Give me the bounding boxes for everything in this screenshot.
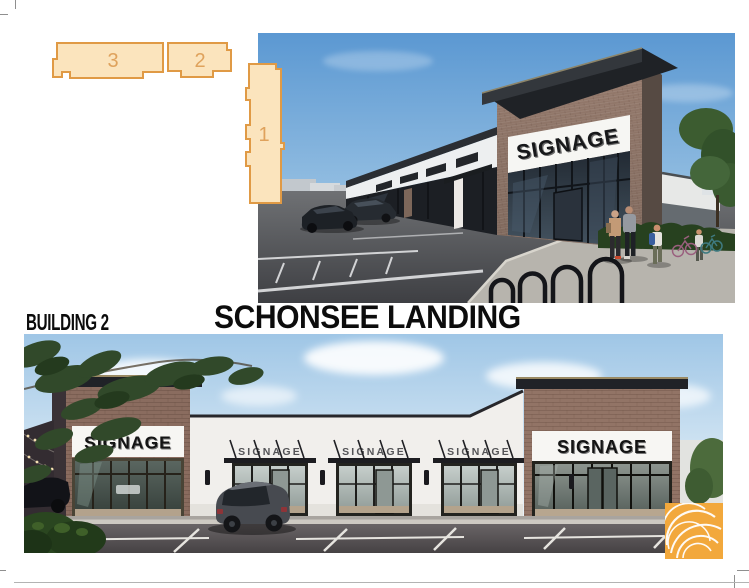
tenant-bay: SIGNAGE [328,440,420,516]
entry-door [603,468,617,513]
crop-mark-bottom-right-h [737,570,749,571]
perspective-rendering: SIGNAGE SIGNAGE [258,33,735,303]
page-title: SCHONSEE LANDING [214,301,521,333]
page-edge-line [14,582,749,583]
entry-doors [554,188,582,241]
site-plan-building-number: 3 [107,50,118,72]
right-tower: SIGNAGE SIGNAGE [516,377,688,516]
tree [685,468,713,504]
building-label: BUILDING 2 [26,311,109,334]
entry-door [588,468,602,513]
presentation-page: SIGNAGE SIGNAGE [0,0,749,588]
logo-arcs-icon [665,503,723,559]
canopy-signage-text: SIGNAGE [342,446,406,458]
signage-text: SIGNAGE [557,437,647,457]
canopy [433,458,525,463]
crop-mark-bottom-left-h [0,570,6,571]
brick-pier [404,188,412,218]
glass-reflection-truck [116,485,140,494]
developer-logo [665,503,723,559]
site-plan-building-number: 1 [258,124,269,146]
canopy [328,458,420,463]
wall-sconce [569,474,574,489]
canopy-signage-text: SIGNAGE [447,446,511,458]
site-plan: 3 2 1 [0,0,300,215]
elevation-rendering: SIGNAGE SIGNAGE [24,334,723,553]
backpack [649,233,655,245]
white-pier [454,173,463,229]
tenant-bay: SIGNAGE [433,440,525,516]
canopy-signage-text: SIGNAGE [238,446,302,458]
site-plan-building-number: 2 [194,50,205,72]
canopy [224,458,316,463]
